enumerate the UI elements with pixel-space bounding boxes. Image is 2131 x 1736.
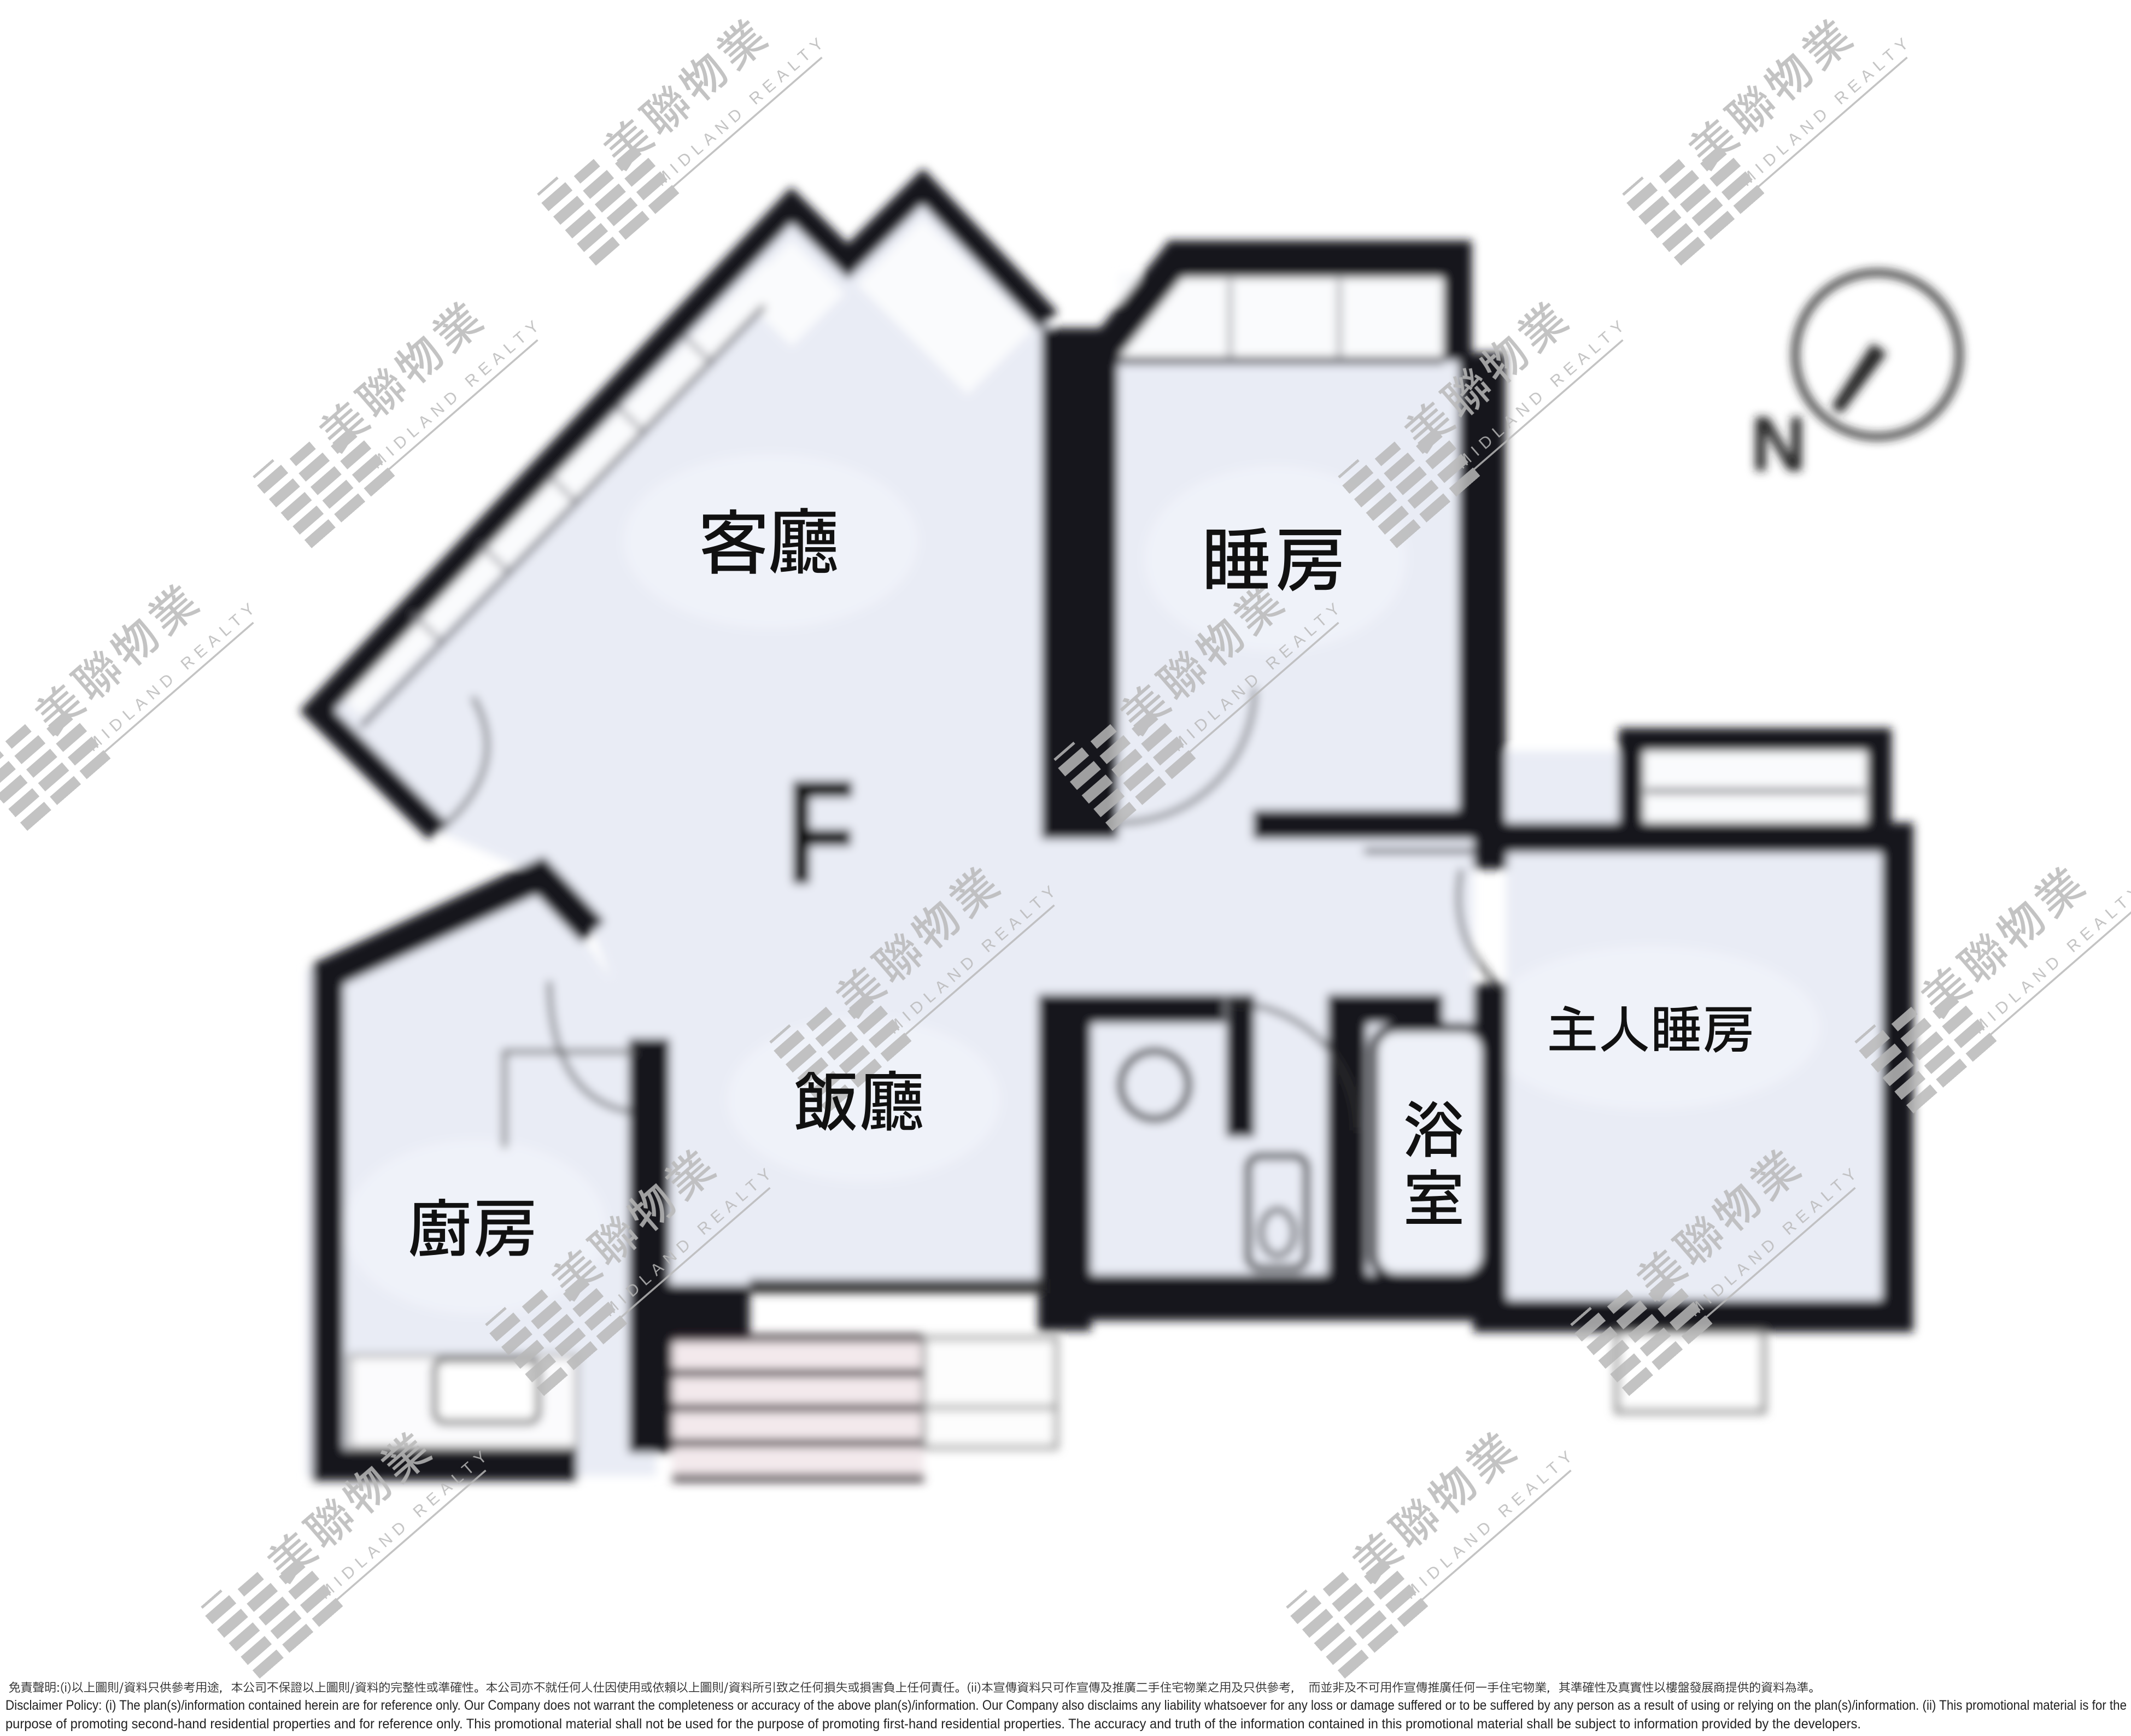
svg-text:N: N	[1751, 401, 1807, 488]
svg-text:purpose of promoting second-ha: purpose of promoting second-hand residen…	[5, 1716, 1861, 1732]
svg-text:Disclaimer Policy: (i) The pla: Disclaimer Policy: (i) The plan(s)/infor…	[5, 1698, 2127, 1713]
svg-text:F: F	[785, 749, 857, 917]
